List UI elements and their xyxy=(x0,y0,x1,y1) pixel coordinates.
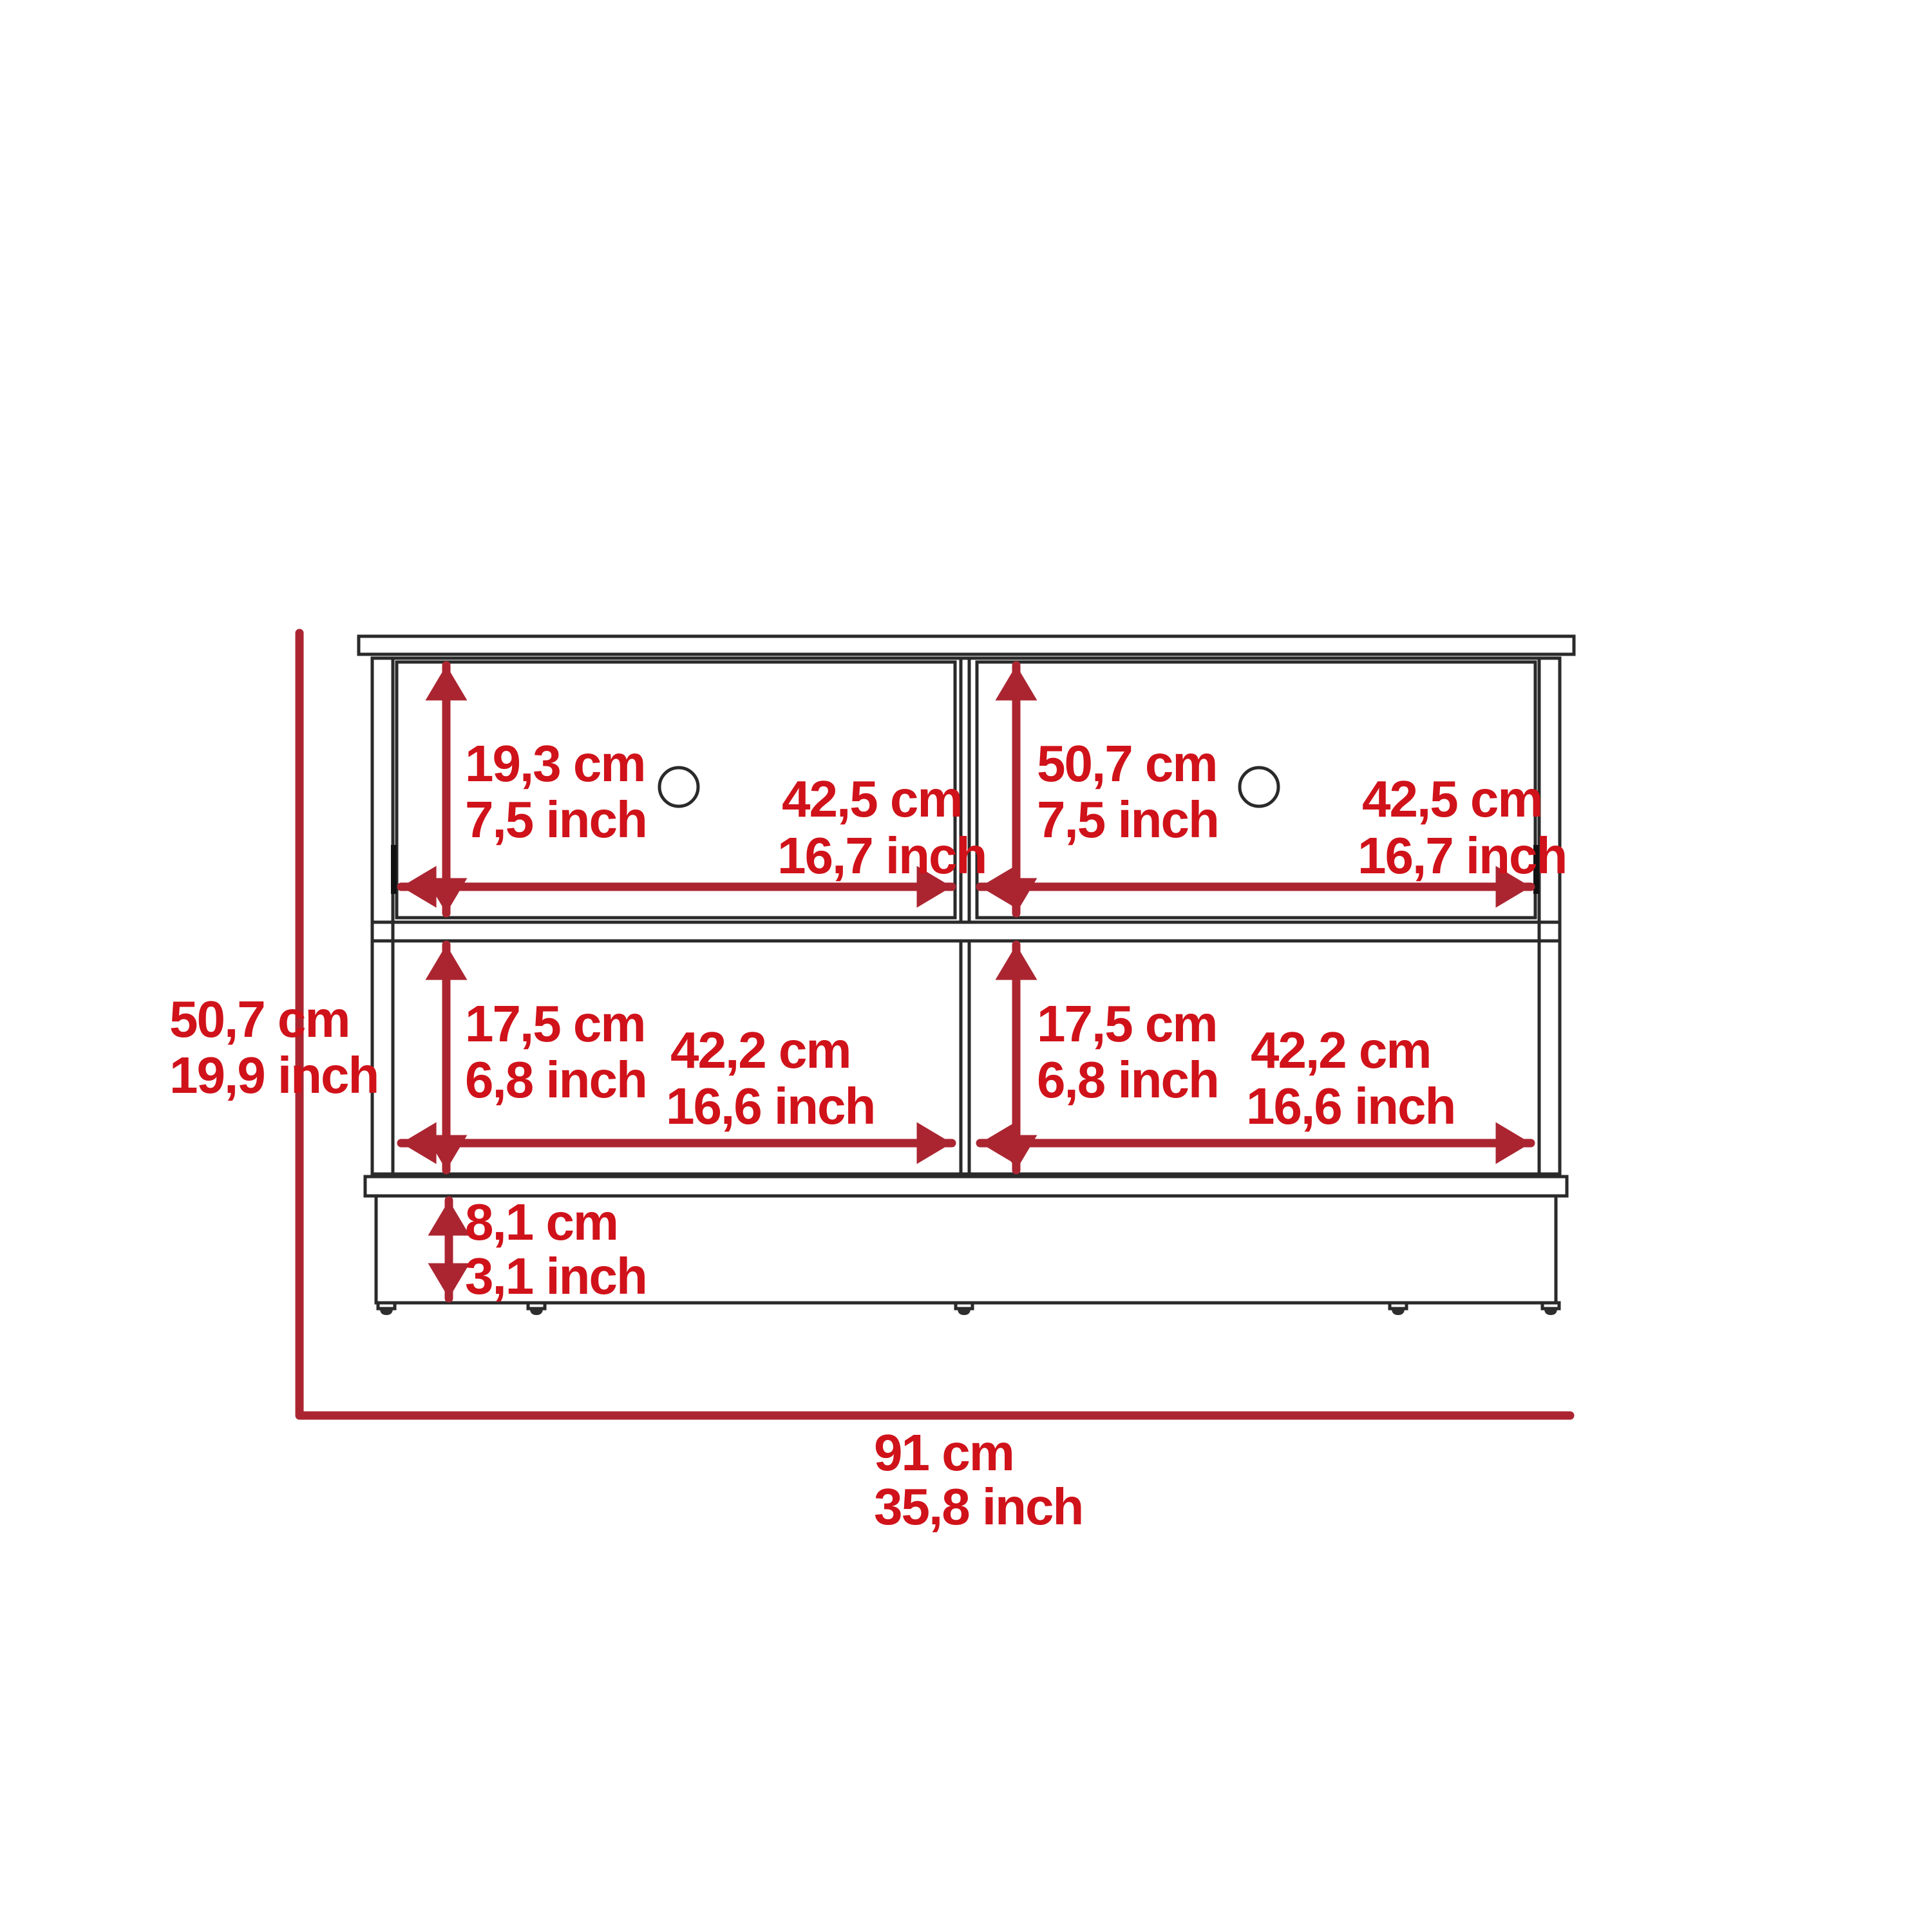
drawer-right-knob-icon xyxy=(1240,768,1278,806)
dimension-diagram: 19,3 cm 7,5 inch 42,5 cm 16,7 inch 50,7 … xyxy=(0,0,1932,1932)
drawer-left-width-inch-label: 16,7 inch xyxy=(777,827,986,884)
shelf-right-width-cm-label: 42,2 cm xyxy=(1251,1021,1431,1079)
shelf-right-width-inch-label: 16,6 inch xyxy=(1246,1077,1455,1135)
shelf-left-height-inch-label: 6,8 inch xyxy=(465,1051,647,1108)
drawer-right-width-inch-label: 16,7 inch xyxy=(1358,827,1566,884)
drawer-right-width-cm-label: 42,5 cm xyxy=(1362,770,1542,828)
drawer-left-width-cm-label: 42,5 cm xyxy=(782,770,962,828)
shelf-left-height-cm-label: 17,5 cm xyxy=(465,995,645,1052)
overall-width-cm-label: 91 cm xyxy=(874,1424,1014,1481)
drawer-left-height-cm-label: 19,3 cm xyxy=(465,735,645,792)
foot-icon xyxy=(1542,1303,1559,1315)
overall-height-inch-label: 19,9 inch xyxy=(169,1046,378,1104)
drawer-right-height-inch-label: 7,5 inch xyxy=(1037,791,1218,848)
base-height-cm-label: 8,1 cm xyxy=(465,1193,618,1251)
foot-icon xyxy=(378,1303,395,1315)
shelf-right-height-cm-label: 17,5 cm xyxy=(1037,995,1217,1052)
shelf-right-height-inch-label: 6,8 inch xyxy=(1037,1051,1218,1108)
overall-height-cm-label: 50,7 cm xyxy=(169,990,350,1048)
foot-icon xyxy=(1390,1303,1406,1315)
overall-width-inch-label: 35,8 inch xyxy=(874,1478,1083,1535)
top-board xyxy=(359,636,1574,654)
base-height-inch-label: 3,1 inch xyxy=(465,1247,647,1305)
foot-icon xyxy=(956,1303,972,1315)
drawer-left-hinge-icon xyxy=(391,845,397,894)
drawer-right-height-cm-label: 50,7 cm xyxy=(1037,735,1217,792)
drawer-left-height-inch-label: 7,5 inch xyxy=(465,791,647,848)
shelf-left-width-cm-label: 42,2 cm xyxy=(670,1021,851,1079)
shelf-left-width-inch-label: 16,6 inch xyxy=(666,1077,875,1135)
drawer-left-knob-icon xyxy=(659,768,698,806)
